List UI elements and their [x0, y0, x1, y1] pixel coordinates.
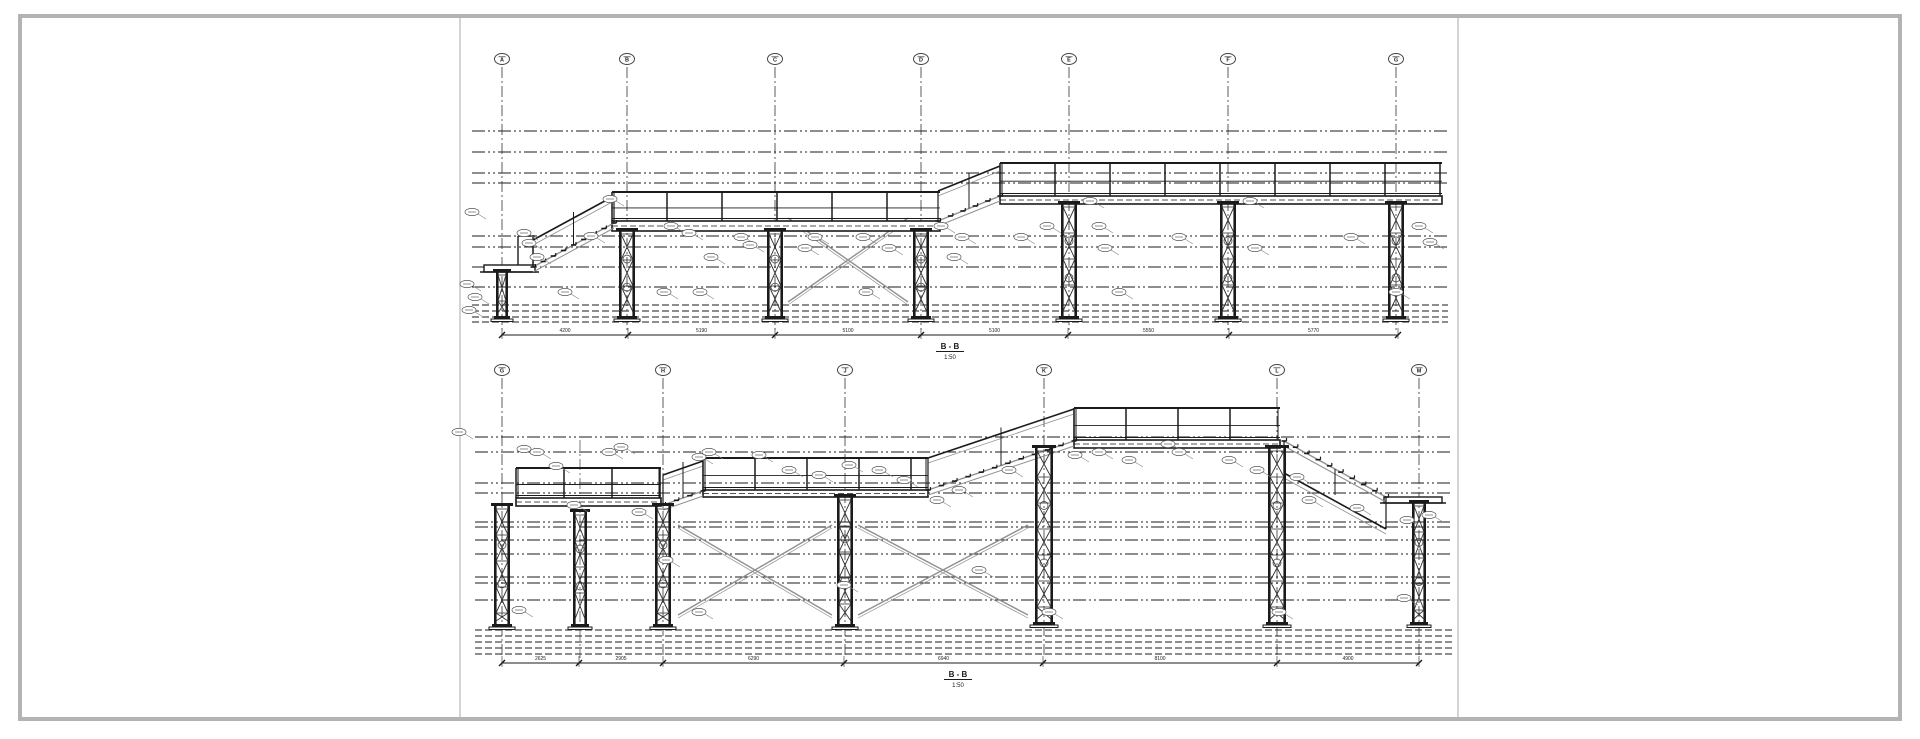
column-chord: [496, 272, 499, 316]
column-cap-plate: [1385, 201, 1407, 204]
section-scale: 1:50: [952, 683, 964, 689]
column-base-plate: [1030, 625, 1058, 628]
column-cap-plate: [1409, 500, 1429, 503]
column-chord: [1423, 503, 1426, 622]
dimension-value: 5550: [1143, 328, 1154, 334]
column-chord: [1283, 448, 1286, 622]
grid-bubble-label: K: [1042, 369, 1046, 375]
dimension-value: 6940: [938, 656, 949, 662]
column-base-plate: [1056, 319, 1082, 322]
dimension-value: 4200: [559, 328, 570, 334]
dimension-value: 6290: [748, 656, 759, 662]
dimension-value: 2625: [535, 656, 546, 662]
column-base-plate: [762, 319, 788, 322]
section-title: B - B: [949, 670, 968, 679]
dimension-value: 8100: [1154, 656, 1165, 662]
column-cap-plate: [652, 503, 674, 506]
column-cap-plate: [764, 228, 786, 231]
sheet-frame: [20, 16, 1900, 719]
dimension-value: 5770: [1308, 328, 1319, 334]
dimension-value: 2905: [615, 656, 626, 662]
column-chord: [926, 231, 929, 316]
grid-bubble-label: H: [661, 369, 665, 375]
column-chord: [913, 231, 916, 316]
grid-bubble-label: D: [919, 58, 923, 64]
column-chord: [780, 231, 783, 316]
grid-bubble-label: E: [1067, 58, 1071, 64]
column-base-plate: [832, 627, 858, 630]
cad-sheet-svg: ABCDEFG420051905100510055505770B - B1:50…: [0, 0, 1920, 739]
column-chord: [505, 272, 508, 316]
column-cap-plate: [910, 228, 932, 231]
dimension-value: 5190: [696, 328, 707, 334]
column-chord: [1268, 448, 1271, 622]
column-chord: [632, 231, 635, 316]
column-base-plate: [1407, 625, 1431, 628]
column-base-plate: [489, 627, 515, 630]
column-base-plate: [1215, 319, 1241, 322]
column-chord: [767, 231, 770, 316]
column-chord: [668, 506, 671, 624]
column-chord: [1050, 448, 1053, 622]
dimension-value: 4900: [1342, 656, 1353, 662]
column-cap-plate: [1217, 201, 1239, 204]
grid-bubble-label: J: [843, 369, 846, 375]
column-cap-plate: [493, 269, 511, 272]
column-base-plate: [1383, 319, 1409, 322]
column-chord: [507, 506, 510, 624]
column-cap-plate: [1032, 445, 1056, 448]
sheet-canvas: ABCDEFG420051905100510055505770B - B1:50…: [0, 0, 1920, 739]
grid-bubble-label: B: [625, 58, 629, 64]
column-base-plate: [568, 627, 592, 630]
column-chord: [1035, 448, 1038, 622]
column-base-plate: [491, 319, 513, 322]
column-cap-plate: [1058, 201, 1080, 204]
column-cap-plate: [491, 503, 513, 506]
column-cap-plate: [834, 494, 856, 497]
column-cap-plate: [1265, 445, 1289, 448]
column-cap-plate: [616, 228, 638, 231]
section-title: B - B: [941, 342, 960, 351]
column-chord: [655, 506, 658, 624]
column-base-plate: [908, 319, 934, 322]
grid-bubble-label: C: [773, 58, 777, 64]
grid-bubble-label: M: [1417, 369, 1422, 375]
column-base-plate: [1263, 625, 1291, 628]
dimension-value: 5100: [842, 328, 853, 334]
column-base-plate: [650, 627, 676, 630]
grid-bubble-label: G: [1394, 58, 1398, 64]
column-chord: [619, 231, 622, 316]
grid-bubble-label: G: [500, 369, 504, 375]
grid-bubble-label: A: [500, 58, 504, 64]
section-scale: 1:50: [944, 355, 956, 361]
column-chord: [494, 506, 497, 624]
column-base-plate: [614, 319, 640, 322]
dimension-value: 5100: [989, 328, 1000, 334]
